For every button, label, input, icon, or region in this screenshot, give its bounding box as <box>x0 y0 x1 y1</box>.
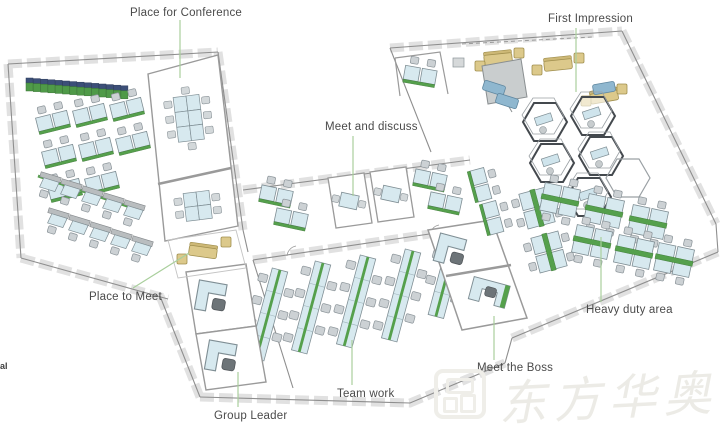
label-first-impression: First Impression <box>548 13 633 26</box>
floor-plan-canvas: Place for Conference First Impression Me… <box>0 0 720 429</box>
open-office-left-wing <box>26 55 238 265</box>
floor-plan-illustration <box>0 0 720 429</box>
first-impression-reception <box>395 48 650 216</box>
label-group-leader: Group Leader <box>214 410 287 423</box>
label-meet-and-discuss: Meet and discuss <box>325 121 418 134</box>
label-team-work: Team work <box>337 388 394 401</box>
group-leader-offices <box>186 264 266 390</box>
side-table <box>453 58 464 67</box>
label-place-for-conference: Place for Conference <box>130 7 242 20</box>
label-heavy-duty-area: Heavy duty area <box>586 304 673 317</box>
label-place-to-meet: Place to Meet <box>89 291 162 304</box>
place-to-meet-leader-line <box>133 253 189 288</box>
label-meet-the-boss: Meet the Boss <box>477 362 553 375</box>
clipped-text-fragment: al <box>0 361 8 371</box>
